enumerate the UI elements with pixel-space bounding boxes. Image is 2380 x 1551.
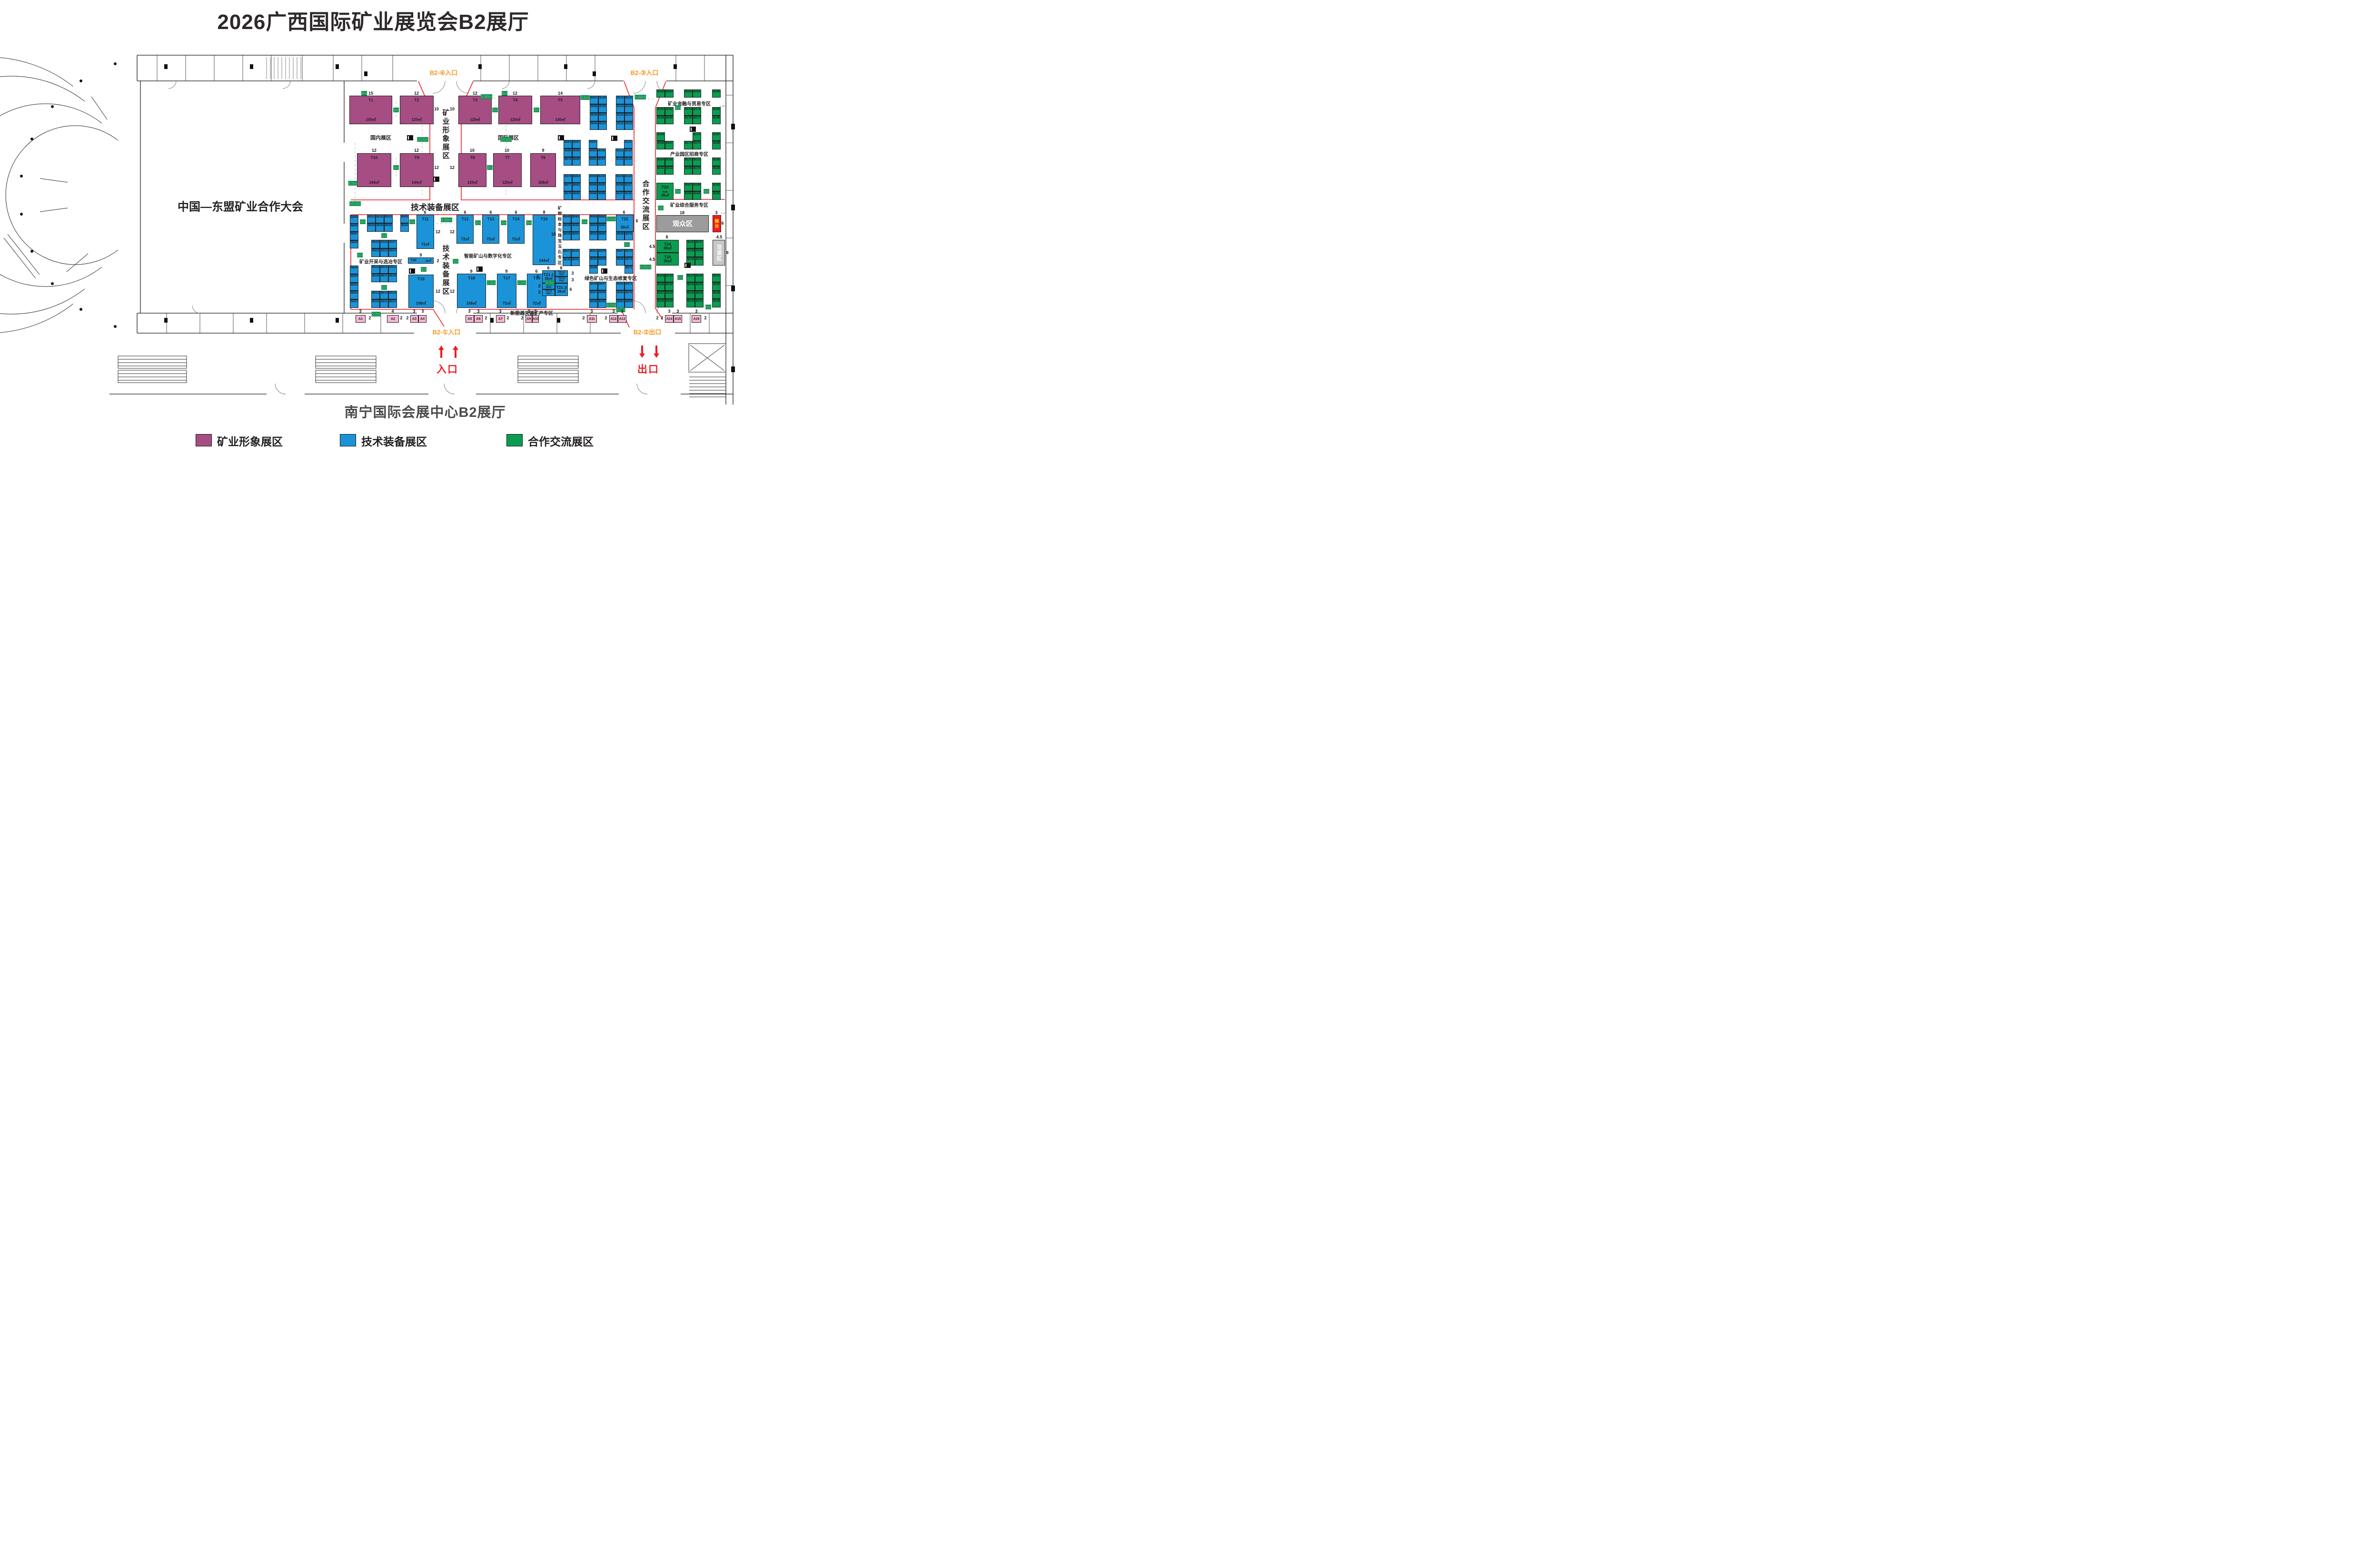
booth-B057: B057 xyxy=(598,282,606,290)
booth-B063: B063 xyxy=(616,299,625,308)
dimension-label: 3m xyxy=(393,108,399,112)
dimension-label: 6m xyxy=(357,253,363,257)
dimension-label: 3.5m xyxy=(607,303,616,307)
booth-B031: B031 xyxy=(367,215,376,223)
booth-B042: B042 xyxy=(571,249,580,257)
booth-B130: B130 xyxy=(665,299,674,307)
booth-T22: T2236㎡ xyxy=(616,215,634,232)
dimension-label: 18 xyxy=(551,232,556,237)
booth-B081: B081 xyxy=(564,140,572,148)
booth-B050: B050 xyxy=(589,257,598,265)
booth-B067: B067 xyxy=(616,249,625,257)
booth-B087: B087 xyxy=(572,140,581,148)
dimension-label: 1.6m xyxy=(719,105,725,108)
booth-B079: B079 xyxy=(564,157,572,166)
zone-label: 绿色矿山与生态修复专区 xyxy=(585,275,637,282)
booth-T8: T8120㎡ xyxy=(458,153,486,187)
dimension-label: 3 xyxy=(499,309,501,314)
booth-T21-5: T21-518㎡ xyxy=(542,289,555,296)
booth-B185: B185 xyxy=(712,158,721,166)
booth-B060: B060 xyxy=(598,232,606,240)
entrance-label: B2-③入口 xyxy=(631,68,659,77)
booth-B170: B170 xyxy=(693,166,701,175)
booth-B098: B098 xyxy=(597,191,606,200)
dimension-label: 3 xyxy=(612,309,615,314)
dimension-label: 14 xyxy=(558,91,563,96)
dimension-label: 2 xyxy=(485,316,487,320)
dimension-label: 12 xyxy=(473,91,477,96)
dimension-label: 2 xyxy=(400,316,402,320)
booth-B083: B083 xyxy=(572,183,581,191)
dimension-label: 2 xyxy=(605,316,607,320)
dimension-label: 9 xyxy=(470,269,472,274)
dimension-label: 6 xyxy=(635,218,638,223)
dimension-label: 4m xyxy=(361,91,367,96)
booth-B047: B047 xyxy=(589,290,598,299)
booth-B101: B101 xyxy=(597,157,606,166)
dimension-label: 3m xyxy=(409,219,415,224)
floorplan-page: 2026广西国际矿业展览会B2展厅 南宁国际会展中心B2展厅 T1150㎡T21… xyxy=(0,0,746,458)
booth-B103: B103 xyxy=(598,121,607,130)
booth-B147: B147 xyxy=(695,240,704,248)
dimension-label: 6 xyxy=(721,221,724,226)
dimension-label: 4m xyxy=(704,189,709,194)
booth-B149: B149 xyxy=(712,291,721,299)
dimension-label: 3m xyxy=(381,285,387,290)
booth-B171: B171 xyxy=(684,158,693,166)
zone-label: 技术装备展区 xyxy=(411,201,459,213)
dimension-label: 3.2m xyxy=(517,280,526,285)
booth-B053: B053 xyxy=(589,223,598,232)
booth-B139: B139 xyxy=(686,248,695,257)
booth-A15: A15 xyxy=(674,315,682,323)
dimension-label: 5m xyxy=(677,275,683,280)
booth-T9: T9144㎡ xyxy=(400,153,434,187)
dimension-label: 4.5 xyxy=(716,235,723,239)
booth-B018: B018 xyxy=(388,274,397,282)
dimension-label: 9m xyxy=(453,259,458,264)
booth-B186: B186 xyxy=(712,141,721,149)
booth-B134: B134 xyxy=(686,299,695,307)
booth-B026: B026 xyxy=(380,240,388,248)
booth-B005: B005 xyxy=(350,266,358,274)
column-marker xyxy=(611,136,617,141)
booth-B013: B013 xyxy=(371,291,380,299)
booth-B091: B091 xyxy=(589,157,597,166)
booth-B152: B152 xyxy=(656,166,665,175)
booth-A13: A13 xyxy=(618,315,626,323)
dimension-label: 3.5m xyxy=(581,95,590,100)
booth-B137: B137 xyxy=(686,274,695,282)
dimension-label: 3m xyxy=(487,165,493,170)
legend-label: 技术装备展区 xyxy=(361,433,427,449)
booth-B151: B151 xyxy=(712,274,721,282)
dimension-label: 8.89m xyxy=(635,95,646,99)
dimension-label: 15 xyxy=(368,91,373,96)
booth-B073: B073 xyxy=(625,257,633,265)
dimension-label: 3m xyxy=(475,220,481,225)
dimension-label: 3m xyxy=(624,242,630,247)
page-title: 2026广西国际矿业展览会B2展厅 xyxy=(217,5,529,35)
dimension-label: 10.5m xyxy=(417,137,428,142)
booth-B076: B076 xyxy=(564,191,572,200)
dimension-label: 4m xyxy=(421,267,426,272)
booth-B027: B027 xyxy=(388,240,397,248)
booth-B172: B172 xyxy=(693,158,701,166)
column-marker xyxy=(558,135,564,140)
dimension-label: 3.5m xyxy=(607,217,616,221)
column-marker xyxy=(407,135,413,140)
dimension-label: 12 xyxy=(450,165,455,170)
booth-B020: B020 xyxy=(380,265,388,274)
booth-T21-3: T21-336㎡ xyxy=(555,283,568,296)
booth-B174: B174 xyxy=(693,141,701,149)
booth-B009: B009 xyxy=(350,215,358,224)
dimension-label: 3 xyxy=(571,271,574,276)
booth-B006: B006 xyxy=(350,240,358,249)
booth-B001: B001 xyxy=(350,299,358,308)
booth-B188: B188 xyxy=(712,116,721,124)
dimension-label: 3m xyxy=(534,108,539,112)
booth-B107: B107 xyxy=(615,191,624,200)
booth-T21-2: T21-218㎡ xyxy=(555,270,568,277)
booth-B038: B038 xyxy=(563,232,571,240)
zone-label: 矿业开采与选冶专区 xyxy=(359,258,402,265)
booth-B175: B175 xyxy=(693,132,701,141)
booth-B121: B121 xyxy=(624,140,633,148)
column-marker xyxy=(601,268,607,274)
dimension-label: 3m xyxy=(360,219,366,224)
booth-B095: B095 xyxy=(590,113,598,121)
booth-B155: B155 xyxy=(665,158,674,166)
booth-B092: B092 xyxy=(589,148,597,157)
dimension-label: 10.5m xyxy=(349,201,361,206)
dimension-label: 1.6m xyxy=(721,212,727,215)
booth-T23: T2336㎡6x6 xyxy=(656,183,674,200)
booth-B080: B080 xyxy=(564,148,572,157)
booth-B008: B008 xyxy=(350,224,358,232)
dimension-label: 3.5m xyxy=(348,181,357,186)
booth-B062: B062 xyxy=(598,215,606,223)
booth-T10: T10144㎡ xyxy=(357,153,391,187)
booth-B156: B156 xyxy=(656,141,665,149)
booth-B025: B025 xyxy=(371,240,380,248)
booth-B074: B074 xyxy=(625,249,633,257)
booth-B055: B055 xyxy=(598,299,606,308)
booth-B148: B148 xyxy=(712,299,721,307)
zone-label: 产业园区招商专区 xyxy=(670,150,708,158)
dimension-label: 6m xyxy=(658,206,664,210)
dimension-label: 3 xyxy=(413,309,415,314)
booth-B189: B189 xyxy=(712,107,721,116)
zone-label: 矿业金融与贸易专区 xyxy=(668,100,711,107)
booth-B108: B108 xyxy=(615,183,624,191)
booth-B082: B082 xyxy=(572,191,581,200)
booth-A2: A2 xyxy=(387,315,399,323)
booth-B007: B007 xyxy=(350,232,358,240)
booth-B120: B120 xyxy=(624,148,633,157)
up-arrow-icon xyxy=(438,346,444,358)
booth-B160: B160 xyxy=(665,116,674,124)
booth-B069: B069 xyxy=(625,299,633,308)
dimension-label: 2 xyxy=(436,258,439,263)
booth-B166: B166 xyxy=(693,191,701,200)
booth-T6: T6108㎡ xyxy=(530,153,556,187)
booth-B110: B110 xyxy=(615,157,624,166)
dimension-label: 3 xyxy=(676,309,679,314)
booth-B158: B158 xyxy=(656,132,665,141)
booth-B035: B035 xyxy=(400,215,409,223)
zone-label: 矿业形象展区 xyxy=(441,109,451,160)
gate-label: 入口 xyxy=(436,362,458,376)
booth-A16: A16 xyxy=(692,315,701,323)
booth-B051: B051 xyxy=(589,249,598,257)
booth-B140: B140 xyxy=(686,240,695,248)
dimension-label: 3 xyxy=(421,309,424,314)
legend-label: 合作交流展区 xyxy=(528,433,594,449)
booth-B078: B078 xyxy=(564,174,572,183)
booth-B033: B033 xyxy=(384,215,393,223)
dimension-label: 12 xyxy=(414,148,419,153)
booth-B144: B144 xyxy=(695,274,704,282)
booth-B059: B059 xyxy=(598,249,606,257)
dimension-label: 3 xyxy=(538,284,540,288)
dimension-label: 3 xyxy=(538,290,540,295)
dimension-label: 12 xyxy=(372,148,377,153)
booth-B048: B048 xyxy=(589,282,598,290)
venue-subtitle: 南宁国际会展中心B2展厅 xyxy=(344,401,506,421)
booth-B071: B071 xyxy=(625,282,633,290)
booth-T17: T1772㎡ xyxy=(497,274,516,308)
booth-B143: B143 xyxy=(695,282,704,291)
dimension-label: 2 xyxy=(406,316,408,320)
dimension-label: 3 xyxy=(668,309,670,314)
dimension-label: 12 xyxy=(434,165,439,170)
dimension-label: 12 xyxy=(513,91,517,96)
booth-B002: B002 xyxy=(350,291,358,299)
booth-B022: B022 xyxy=(371,248,380,257)
dimension-label: 9 xyxy=(542,148,544,153)
dimension-label: 10.5m xyxy=(500,137,512,142)
dimension-label: 3m xyxy=(501,220,506,225)
dimension-label: 6 xyxy=(623,210,625,215)
booth-B153: B153 xyxy=(665,166,674,175)
booth-T20: T2018㎡ xyxy=(408,257,434,264)
booth-B112: B112 xyxy=(616,121,625,130)
theater-columns xyxy=(20,62,117,328)
dimension-label: 3 xyxy=(527,309,530,314)
booth-B173: B173 xyxy=(684,141,693,149)
booth-B161: B161 xyxy=(656,107,665,116)
dimension-label: 10 xyxy=(505,148,509,153)
booth-B190: B190 xyxy=(712,89,721,98)
dimension-label: 18 xyxy=(680,210,684,215)
column-marker xyxy=(684,263,691,268)
booth-B090: B090 xyxy=(589,174,597,183)
column-marker xyxy=(409,268,415,274)
dimension-label: 8 xyxy=(665,235,668,239)
booth-B099: B099 xyxy=(597,183,606,191)
booth-B127: B127 xyxy=(656,291,665,299)
booth-B045: B045 xyxy=(571,215,580,223)
dimension-label: 3m xyxy=(393,165,399,170)
booth-T15: T15144㎡ xyxy=(533,215,555,265)
audience-area: 观众区 xyxy=(656,215,709,232)
booth-B154: B154 xyxy=(656,158,665,166)
booth-B157: B157 xyxy=(665,141,674,149)
booth-T2: T2120㎡ xyxy=(400,96,434,124)
down-arrow-icon xyxy=(654,346,659,358)
booth-T18: T18108㎡ xyxy=(457,274,486,308)
booth-B072: B072 xyxy=(625,266,633,274)
zone-label: 国内展区 xyxy=(370,134,391,141)
booth-B017: B017 xyxy=(380,274,388,282)
zone-label: 中国—东盟矿业合作大会 xyxy=(178,198,303,214)
booth-B114: B114 xyxy=(616,104,625,113)
booth-B015: B015 xyxy=(388,291,397,299)
entrance-label: B2-①入口 xyxy=(433,327,461,336)
booth-B064: B064 xyxy=(616,290,625,299)
booth-B129: B129 xyxy=(656,274,665,282)
dimension-label: 8.89m xyxy=(441,217,452,222)
booth-T3: T3120㎡ xyxy=(458,96,492,124)
escalators xyxy=(118,344,726,397)
booth-T24: T2436㎡ xyxy=(656,240,679,253)
booth-A1: A1 xyxy=(356,315,366,323)
dimension-label: 3 xyxy=(590,309,593,314)
dimension-label: 9 xyxy=(726,250,728,255)
booth-B142: B142 xyxy=(695,291,704,299)
booth-B061: B061 xyxy=(598,223,606,232)
dimension-label: 3.2m xyxy=(487,280,496,285)
dimension-label: 12 xyxy=(450,289,455,294)
dimension-label: 12 xyxy=(414,91,419,96)
booth-B132: B132 xyxy=(665,282,674,291)
dimension-label: 2 xyxy=(704,316,706,320)
dimension-label: 3 xyxy=(695,309,697,314)
booth-B014: B014 xyxy=(380,291,388,299)
dimension-label: 2 xyxy=(656,316,658,320)
booth-B128: B128 xyxy=(656,282,665,291)
dimension-label: 12 xyxy=(436,229,440,234)
dimension-label: 2 xyxy=(368,316,371,320)
stair-hatch xyxy=(267,57,301,79)
booth-T7: T7120㎡ xyxy=(493,153,522,187)
booth-B043: B043 xyxy=(571,232,580,240)
dimension-label: 8.89m xyxy=(640,265,651,269)
booth-B180: B180 xyxy=(684,89,693,98)
legend-swatch xyxy=(340,434,356,446)
booth-B029: B029 xyxy=(376,223,384,232)
legend-label: 矿业形象展区 xyxy=(217,433,283,449)
booth-B125: B125 xyxy=(625,96,633,104)
dimension-label: 6 xyxy=(569,287,572,292)
dimension-label: 10 xyxy=(434,107,439,111)
dimension-label: 2 xyxy=(582,316,585,320)
dimension-label: 9 xyxy=(419,253,422,257)
zone-label: 技术装备展区 xyxy=(441,245,451,296)
dimension-label: 3.7m xyxy=(545,280,555,285)
booth-B004: B004 xyxy=(350,274,358,283)
booth-B176: B176 xyxy=(684,116,693,124)
column-marker xyxy=(433,177,439,182)
booth-B016: B016 xyxy=(371,274,380,282)
booth-B093: B093 xyxy=(589,140,597,148)
booth-B162: B162 xyxy=(665,107,674,116)
zone-label: 新能源关键矿产专区 xyxy=(510,309,553,316)
booth-B164: B164 xyxy=(665,89,674,98)
down-arrow-icon xyxy=(639,346,645,358)
dimension-label: 6 xyxy=(536,274,539,279)
dimension-label: 3 xyxy=(571,277,574,282)
booth-B056: B056 xyxy=(598,290,606,299)
booth-B136: B136 xyxy=(686,282,695,291)
gate-label: 出口 xyxy=(637,362,659,376)
up-arrow-icon xyxy=(453,346,458,358)
dimension-label: 6 xyxy=(560,266,562,270)
dimension-label: 3 xyxy=(621,309,623,314)
dimension-label: 2 xyxy=(521,316,523,320)
booth-B126: B126 xyxy=(656,299,665,307)
dimension-label: 4m xyxy=(675,105,681,110)
booth-B039: B039 xyxy=(563,223,571,232)
booth-T5: T5140㎡ xyxy=(540,96,580,124)
booth-B135: B135 xyxy=(686,291,695,299)
booth-T12: T1272㎡ xyxy=(456,215,474,244)
booth-T21-6: T21-618㎡ xyxy=(555,277,568,283)
booth-B169: B169 xyxy=(684,166,693,175)
booth-B124: B124 xyxy=(625,104,633,113)
booth-B113: B113 xyxy=(616,113,625,121)
entrance-label: B2-④入口 xyxy=(430,68,458,77)
column-marker xyxy=(476,267,483,272)
booth-B058: B058 xyxy=(598,257,606,265)
dimension-label: 4m xyxy=(675,189,681,194)
booth-B150: B150 xyxy=(712,282,721,291)
dimension-label: 3 xyxy=(359,309,361,314)
dimension-label: 3m xyxy=(492,108,498,112)
legend-swatch xyxy=(506,434,523,446)
booth-B028: B028 xyxy=(367,223,376,232)
booth-T14: T1472㎡ xyxy=(507,215,525,244)
booth-B011: B011 xyxy=(380,299,388,308)
booth-B034: B034 xyxy=(400,223,409,232)
booth-B181: B181 xyxy=(693,89,701,98)
booth-B030: B030 xyxy=(384,223,393,232)
booth-B102: B102 xyxy=(597,148,606,157)
stage: 舞台 xyxy=(713,215,721,232)
booth-B179: B179 xyxy=(693,107,701,116)
booth-B094: B094 xyxy=(590,121,598,130)
booth-B037: B037 xyxy=(563,249,571,257)
theater-wing xyxy=(0,57,118,333)
booth-B054: B054 xyxy=(589,215,598,223)
booth-B159: B159 xyxy=(656,116,665,124)
booth-B097: B097 xyxy=(590,96,598,104)
booth-B019: B019 xyxy=(371,265,380,274)
column-marker xyxy=(690,127,696,132)
booth-B036: B036 xyxy=(563,257,571,266)
booth-B066: B066 xyxy=(616,257,625,265)
booth-B046: B046 xyxy=(589,299,598,308)
booth-B040: B040 xyxy=(563,215,571,223)
booth-B117: B117 xyxy=(624,183,633,191)
booth-B106: B106 xyxy=(598,96,607,104)
booth-B075: B075 xyxy=(625,232,633,240)
dimension-label: 3 xyxy=(468,309,470,314)
dimension-label: 4m xyxy=(502,91,507,96)
booth-B105: B105 xyxy=(598,104,607,113)
